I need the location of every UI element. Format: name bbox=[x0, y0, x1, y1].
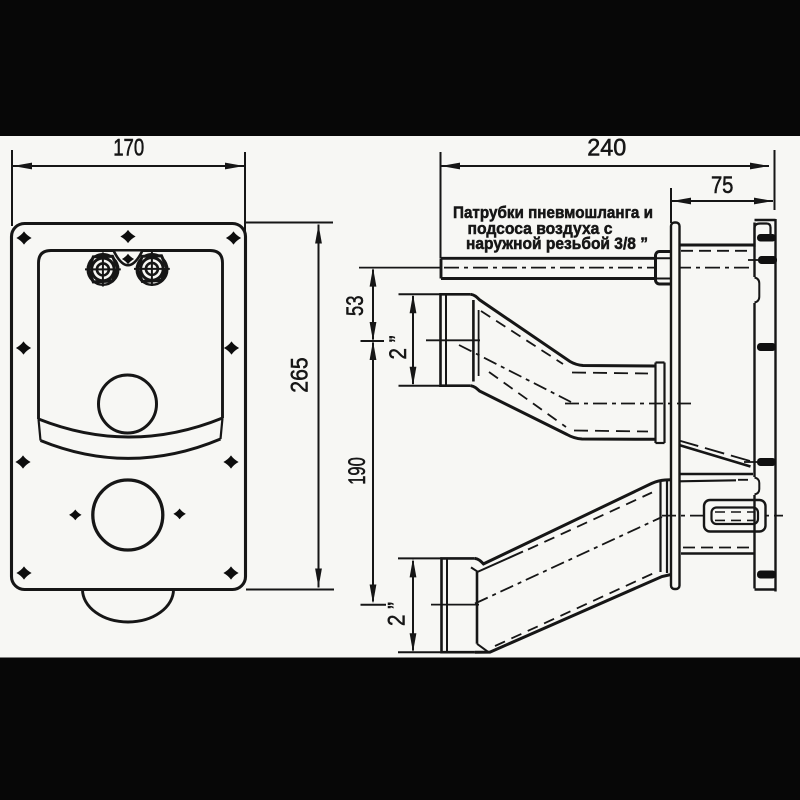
svg-text:75: 75 bbox=[711, 172, 734, 199]
svg-text:2 ”: 2 ” bbox=[384, 602, 411, 626]
svg-text:2 ”: 2 ” bbox=[385, 336, 412, 360]
svg-text:53: 53 bbox=[342, 295, 369, 316]
svg-text:240: 240 bbox=[587, 135, 626, 162]
svg-text:наружной резьбой 3/8 ”: наружной резьбой 3/8 ” bbox=[466, 234, 648, 253]
svg-text:170: 170 bbox=[113, 135, 144, 162]
svg-text:265: 265 bbox=[287, 357, 314, 393]
svg-text:190: 190 bbox=[344, 457, 371, 485]
